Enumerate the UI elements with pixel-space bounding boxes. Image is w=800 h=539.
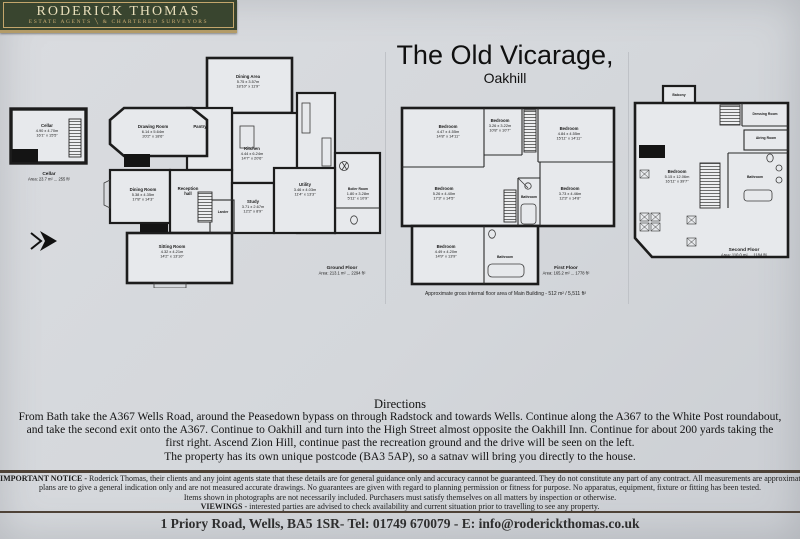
room-label-bedroom-second: Bedroom 5.15 x 12.06m 16'11" x 39'7"	[665, 169, 690, 184]
notice-line-4: VIEWINGS - interested parties are advise…	[0, 502, 800, 511]
svg-text:17'3" x 14'5": 17'3" x 14'5"	[433, 196, 455, 201]
directions-section: Directions From Bath take the A367 Wells…	[0, 397, 800, 464]
svg-text:16'1" x 15'5": 16'1" x 15'5"	[36, 133, 58, 138]
svg-text:10'8" x 10'7": 10'8" x 10'7"	[489, 128, 511, 133]
svg-text:14'9" x 13'9": 14'9" x 13'9"	[435, 254, 457, 259]
cellar-floor-plan: Cellar 4.90 x 4.70m 16'1" x 15'5" Cellar…	[5, 105, 100, 255]
svg-text:14'2" x 13'10": 14'2" x 13'10"	[160, 254, 184, 259]
svg-text:12'2" x 8'9": 12'2" x 8'9"	[243, 209, 263, 214]
viewings-label: VIEWINGS	[201, 502, 243, 511]
svg-text:Area: 165.2 m² ... 1778 ft²: Area: 165.2 m² ... 1778 ft²	[543, 271, 590, 276]
directions-heading: Directions	[0, 397, 800, 411]
north-arrow-icon	[31, 231, 57, 251]
svg-text:Balcony: Balcony	[672, 93, 685, 97]
svg-text:12'3" x 14'8": 12'3" x 14'8"	[559, 196, 581, 201]
first-floor-plan: Bedroom 4.47 x 4.55m 14'8" x 14'11" Bedr…	[388, 92, 623, 292]
notice-line-2: plans are to give a general indication o…	[0, 483, 800, 492]
cellar-caption: Cellar Area: 23.7 m² ... 255 ft²	[28, 171, 71, 182]
directions-line: first right. Ascend Zion Hill, continue …	[0, 437, 800, 450]
svg-text:Bathroom: Bathroom	[747, 175, 763, 179]
important-notice-section: IMPORTANT NOTICE - Roderick Thomas, thei…	[0, 474, 800, 511]
agency-logo-frame: RODERICK THOMAS ESTATE AGENTS ╲ & CHARTE…	[3, 2, 234, 28]
room-label-bathroom-mid: Bathroom	[521, 195, 537, 199]
svg-text:17'8" x 14'3": 17'8" x 14'3"	[132, 197, 154, 202]
room-label-dining-room: Dining Room 5.38 x 4.35m 17'8" x 14'3"	[130, 187, 157, 202]
room-label-boiler-room: Boiler Room 1.80 x 3.28m 5'11" x 10'9"	[347, 187, 370, 201]
svg-text:Pantry: Pantry	[193, 124, 207, 129]
room-label-bedroom-lower: Bedroom 4.49 x 4.20m 14'9" x 13'9"	[435, 244, 458, 259]
room-label-pantry: Pantry	[193, 124, 207, 129]
svg-text:Bathroom: Bathroom	[521, 195, 537, 199]
agency-logo: RODERICK THOMAS ESTATE AGENTS ╲ & CHARTE…	[0, 0, 237, 33]
svg-text:18'10" x 11'9": 18'10" x 11'9"	[236, 84, 260, 89]
directions-line: and take the second exit onto the A367. …	[0, 424, 800, 437]
ground-floor-caption: Ground Floor Area: 213.1 m² ... 2294 ft²	[319, 265, 366, 276]
total-floor-area-note: Approximate gross internal floor area of…	[378, 291, 633, 297]
room-label-bedroom-bl: Bedroom 5.26 x 4.40m 17'3" x 14'5"	[433, 186, 456, 201]
room-label-bedroom-tr: Bedroom 4.84 x 4.55m 15'11" x 14'11"	[556, 126, 582, 141]
svg-text:15'11" x 14'11": 15'11" x 14'11"	[556, 136, 582, 141]
scanned-property-details-page: RODERICK THOMAS ESTATE AGENTS ╲ & CHARTE…	[0, 0, 800, 539]
svg-text:hall: hall	[184, 191, 191, 196]
svg-text:Area: 23.7 m² ... 255 ft²: Area: 23.7 m² ... 255 ft²	[28, 177, 71, 182]
directions-line: The property has its own unique postcode…	[0, 451, 800, 464]
svg-text:Larder: Larder	[218, 210, 229, 214]
room-label-bathroom-lower: Bathroom	[497, 255, 513, 259]
svg-text:5'11" x 10'9": 5'11" x 10'9"	[347, 196, 369, 201]
svg-text:14'8" x 14'11": 14'8" x 14'11"	[436, 134, 460, 139]
svg-text:11'4" x 13'3": 11'4" x 13'3"	[294, 192, 316, 197]
svg-text:Area: 213.1 m² ... 2294 ft²: Area: 213.1 m² ... 2294 ft²	[319, 271, 366, 276]
svg-text:Dressing Room: Dressing Room	[752, 112, 777, 116]
room-label-sitting-room: Sitting Room 4.32 x 4.21m 14'2" x 13'10"	[159, 244, 186, 259]
notice-line-4-text: - interested parties are advised to chec…	[242, 502, 599, 511]
svg-text:Bathroom: Bathroom	[497, 255, 513, 259]
ground-floor-plan: Dining Area 5.75 x 3.57m 18'10" x 11'9" …	[92, 48, 392, 288]
room-label-bedroom-br: Bedroom 3.73 x 4.46m 12'3" x 14'8"	[559, 186, 582, 201]
directions-line: From Bath take the A367 Wells Road, arou…	[0, 411, 800, 424]
svg-text:16'11" x 39'7": 16'11" x 39'7"	[665, 179, 689, 184]
notice-label: IMPORTANT NOTICE -	[0, 474, 89, 483]
ground-floor-walls	[110, 58, 380, 283]
notice-line-1-text: Roderick Thomas, their clients and any j…	[89, 474, 800, 483]
second-floor-plan: Balcony Dressing Room Airing Room Bedroo…	[632, 78, 797, 273]
room-label-airing-room: Airing Room	[756, 136, 776, 140]
notice-line-1: IMPORTANT NOTICE - Roderick Thomas, thei…	[0, 474, 800, 483]
svg-text:Airing Room: Airing Room	[756, 136, 776, 140]
agency-name: RODERICK THOMAS	[37, 5, 201, 19]
svg-text:20'2" x 18'6": 20'2" x 18'6"	[142, 134, 164, 139]
divider-line-top	[0, 470, 800, 473]
room-label-dressing-room: Dressing Room	[752, 112, 777, 116]
room-label-bedroom-tm: Bedroom 3.26 x 3.22m 10'8" x 10'7"	[489, 118, 512, 133]
agency-tagline: ESTATE AGENTS ╲ & CHARTERED SURVEYORS	[29, 19, 208, 26]
room-label-dining-area: Dining Area 5.75 x 3.57m 18'10" x 11'9"	[236, 74, 261, 89]
room-label-larder: Larder	[218, 210, 229, 214]
notice-line-3: Items shown in photographs are not neces…	[0, 493, 800, 502]
svg-text:Area: 110.0 m² ... 1184 ft²: Area: 110.0 m² ... 1184 ft²	[721, 253, 768, 258]
divider-line-bottom	[0, 511, 800, 513]
first-floor-caption: First Floor Area: 165.2 m² ... 1778 ft²	[543, 265, 590, 276]
room-label-balcony: Balcony	[672, 93, 685, 97]
svg-text:14'7" x 20'6": 14'7" x 20'6"	[241, 156, 263, 161]
sheet-edge-line	[628, 52, 629, 304]
room-label-bedroom-tl: Bedroom 4.47 x 4.55m 14'8" x 14'11"	[436, 124, 460, 139]
agency-contact-footer: 1 Priory Road, Wells, BA5 1SR- Tel: 0174…	[0, 516, 800, 532]
room-label-bathroom-second: Bathroom	[747, 175, 763, 179]
